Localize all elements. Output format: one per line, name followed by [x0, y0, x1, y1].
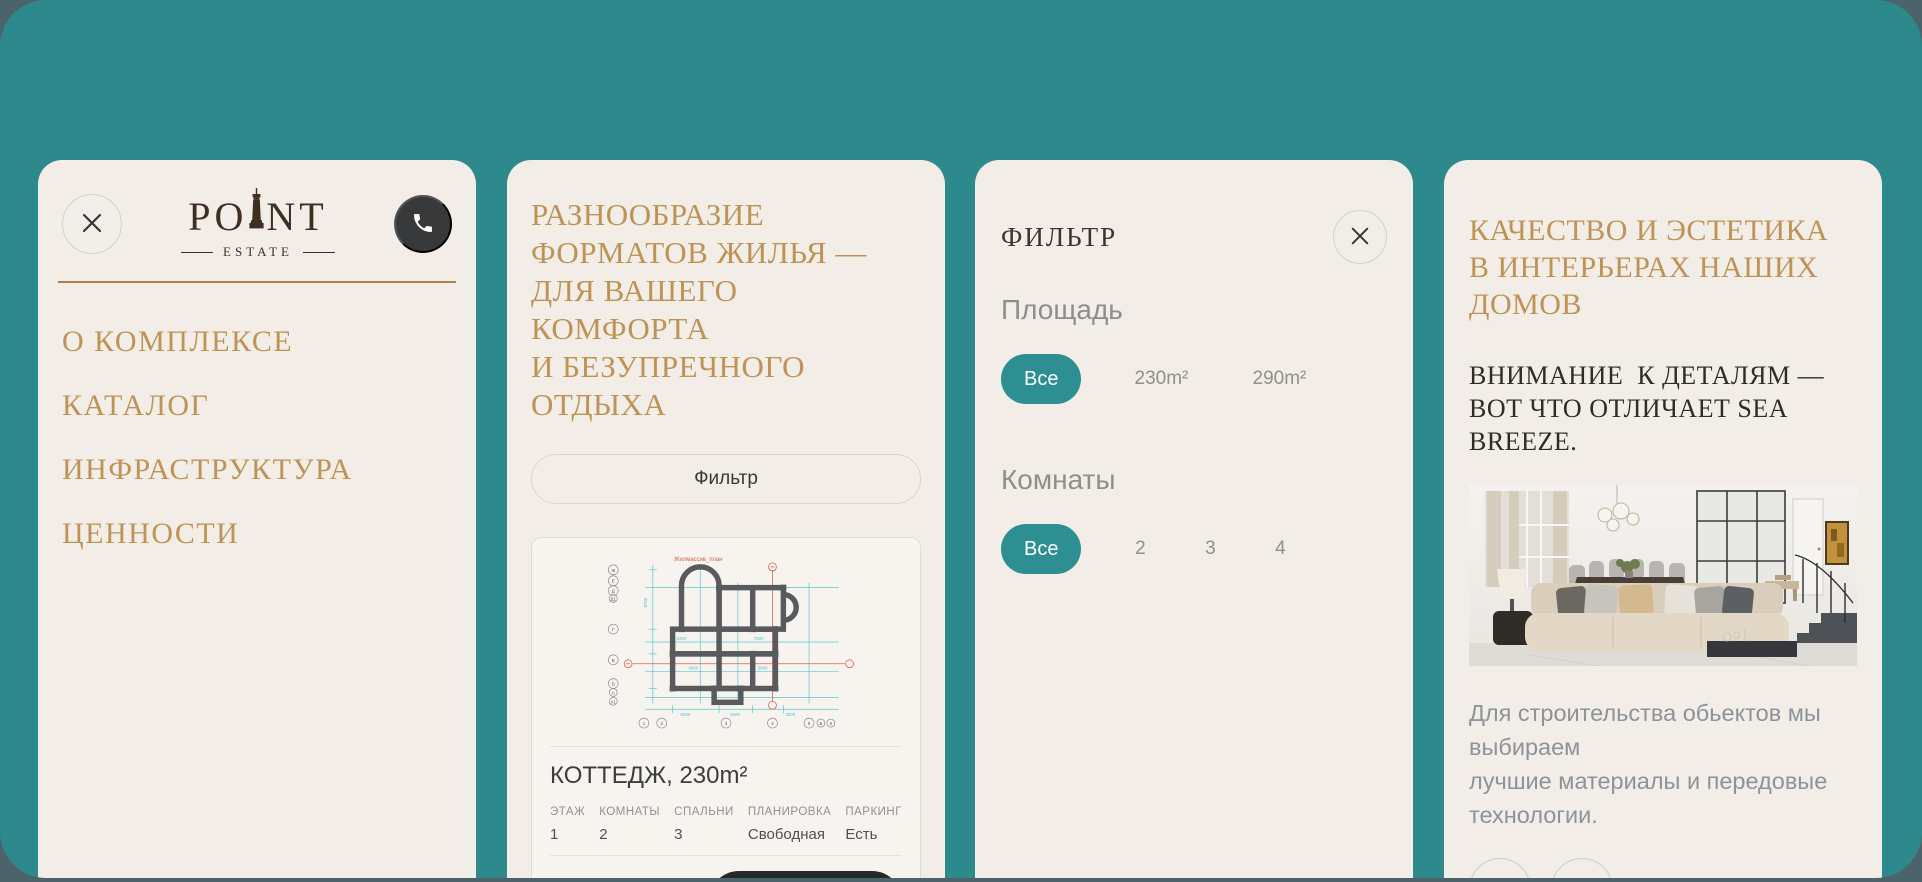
svg-text:3800: 3800	[785, 712, 795, 717]
carousel-nav: ← →	[1469, 858, 1857, 878]
svg-text:4900: 4900	[688, 666, 698, 671]
spec-value: 3	[674, 826, 734, 843]
spec-floor: ЭТАЖ 1	[550, 806, 585, 843]
quality-body-text: Для строительства обьектов мы выбираем л…	[1469, 696, 1857, 832]
phone-button[interactable]	[394, 195, 452, 253]
listing-separator-top	[550, 746, 902, 747]
svg-text:1: 1	[643, 721, 646, 726]
price-row: от 25 000 000₽ Написать брокеру	[550, 871, 902, 878]
svg-text:2500: 2500	[730, 712, 740, 717]
quality-subheading: ВНИМАНИЕ К ДЕТАЛЯМ — ВОТ ЧТО ОТЛИЧАЕТ SE…	[1469, 359, 1857, 458]
svg-text:Г: Г	[612, 627, 615, 632]
lighthouse-icon	[249, 188, 264, 237]
phone-icon	[411, 211, 435, 238]
logo-text-start: PO	[188, 197, 247, 237]
close-icon	[1350, 226, 1370, 249]
svg-text:6300: 6300	[677, 636, 687, 641]
rooms-option-all[interactable]: Все	[1001, 524, 1081, 574]
spec-parking: ПАРКИНГ Есть	[845, 806, 902, 843]
rooms-option-3[interactable]: 3	[1199, 538, 1221, 560]
svg-text:А1: А1	[611, 699, 617, 704]
listing-specs: ЭТАЖ 1 КОМНАТЫ 2 СПАЛЬНИ 3 ПЛАНИРОВКА Св…	[550, 806, 902, 843]
svg-text:7500: 7500	[754, 636, 764, 641]
rooms-options: Все 2 3 4	[1001, 524, 1387, 574]
spec-label: ПАРКИНГ	[845, 806, 902, 818]
filter-section-area-label: Площадь	[1001, 294, 1387, 326]
close-icon	[81, 212, 103, 237]
prev-button[interactable]: ←	[1469, 858, 1531, 878]
svg-text:8700: 8700	[643, 597, 648, 607]
svg-text:2: 2	[660, 721, 663, 726]
filter-panel: ФИЛЬТР Площадь Все 230m² 290m² Комнаты В…	[975, 160, 1413, 878]
spec-label: ЭТАЖ	[550, 806, 585, 818]
svg-text:Е: Е	[612, 579, 615, 584]
spec-bedrooms: СПАЛЬНИ 3	[674, 806, 734, 843]
spec-value: 2	[599, 826, 660, 843]
filter-title: ФИЛЬТР	[1001, 222, 1117, 253]
logo-subtitle: ESTATE	[223, 244, 293, 260]
menu-divider	[58, 281, 456, 283]
listing-separator-bottom	[550, 855, 902, 856]
svg-text:4: 4	[771, 721, 774, 726]
close-button[interactable]	[62, 194, 122, 254]
area-options: Все 230m² 290m²	[1001, 354, 1387, 404]
svg-text:6: 6	[830, 721, 833, 726]
logo-dash-right	[303, 252, 335, 253]
menu-item-values[interactable]: ЦЕННОСТИ	[62, 519, 452, 549]
svg-text:5000: 5000	[681, 712, 691, 717]
arrow-left-icon: ←	[1487, 874, 1514, 879]
menu-header: PO NT	[62, 194, 452, 254]
logo-dash-left	[181, 252, 213, 253]
listing-card[interactable]: 6300 7500 4900 5900 5000 2500 3800 8700	[531, 537, 921, 878]
menu-item-infrastructure[interactable]: ИНФРАСТРУКТУРА	[62, 455, 452, 485]
svg-text:3: 3	[725, 721, 728, 726]
svg-text:Д1: Д1	[611, 596, 617, 601]
teal-backdrop: PO NT	[0, 0, 1922, 878]
next-button[interactable]: →	[1551, 858, 1613, 878]
spec-rooms: КОМНАТЫ 2	[599, 806, 660, 843]
svg-text:А: А	[612, 690, 615, 695]
write-broker-button[interactable]: Написать брокеру	[709, 871, 902, 878]
svg-text:Д: Д	[612, 589, 615, 594]
logo-wordmark: PO NT	[188, 188, 327, 237]
logo-text-end: NT	[266, 197, 327, 237]
spec-value: Есть	[845, 826, 902, 843]
floorplan-title-label: Жилмассив_план	[674, 557, 723, 563]
catalog-panel: РАЗНООБРАЗИЕ ФОРМАТОВ ЖИЛЬЯ — ДЛЯ ВАШЕГО…	[507, 160, 945, 878]
svg-text:В: В	[612, 658, 615, 663]
interior-photo	[1469, 485, 1857, 666]
floorplan-drawing: 6300 7500 4900 5900 5000 2500 3800 8700	[550, 552, 902, 734]
quality-heading: КАЧЕСТВО И ЭСТЕТИКА В ИНТЕРЬЕРАХ НАШИХ Д…	[1469, 212, 1857, 323]
spec-label: СПАЛЬНИ	[674, 806, 734, 818]
menu-list: О КОМПЛЕКСЕ КАТАЛОГ ИНФРАСТРУКТУРА ЦЕННО…	[62, 327, 452, 549]
area-option-all[interactable]: Все	[1001, 354, 1081, 404]
spec-label: ПЛАНИРОВКА	[748, 806, 831, 818]
svg-text:Б: Б	[612, 682, 615, 687]
filter-section-rooms-label: Комнаты	[1001, 464, 1387, 496]
filter-open-button[interactable]: Фильтр	[531, 454, 921, 504]
filter-close-button[interactable]	[1333, 210, 1387, 264]
rooms-option-4[interactable]: 4	[1269, 538, 1291, 560]
quality-panel: КАЧЕСТВО И ЭСТЕТИКА В ИНТЕРЬЕРАХ НАШИХ Д…	[1444, 160, 1882, 878]
spec-value: 1	[550, 826, 585, 843]
area-option-230[interactable]: 230m²	[1123, 368, 1199, 390]
menu-panel: PO NT	[38, 160, 476, 878]
svg-text:5: 5	[808, 721, 811, 726]
filter-header: ФИЛЬТР	[1001, 210, 1387, 264]
spec-value: Свободная	[748, 826, 831, 843]
menu-item-about[interactable]: О КОМПЛЕКСЕ	[62, 327, 452, 357]
area-option-290[interactable]: 290m²	[1241, 368, 1317, 390]
point-estate-logo: PO NT	[122, 188, 394, 260]
svg-text:Ж: Ж	[611, 568, 616, 573]
menu-item-catalog[interactable]: КАТАЛОГ	[62, 391, 452, 421]
catalog-heading: РАЗНООБРАЗИЕ ФОРМАТОВ ЖИЛЬЯ — ДЛЯ ВАШЕГО…	[531, 196, 921, 424]
listing-title: КОТТЕДЖ, 230m²	[550, 762, 902, 790]
svg-text:5900: 5900	[758, 666, 768, 671]
spec-layout: ПЛАНИРОВКА Свободная	[748, 806, 831, 843]
svg-text:Б: Б	[819, 721, 822, 726]
arrow-right-icon: →	[1569, 874, 1596, 879]
spec-label: КОМНАТЫ	[599, 806, 660, 818]
logo-subtitle-row: ESTATE	[181, 244, 335, 260]
rooms-option-2[interactable]: 2	[1129, 538, 1151, 560]
